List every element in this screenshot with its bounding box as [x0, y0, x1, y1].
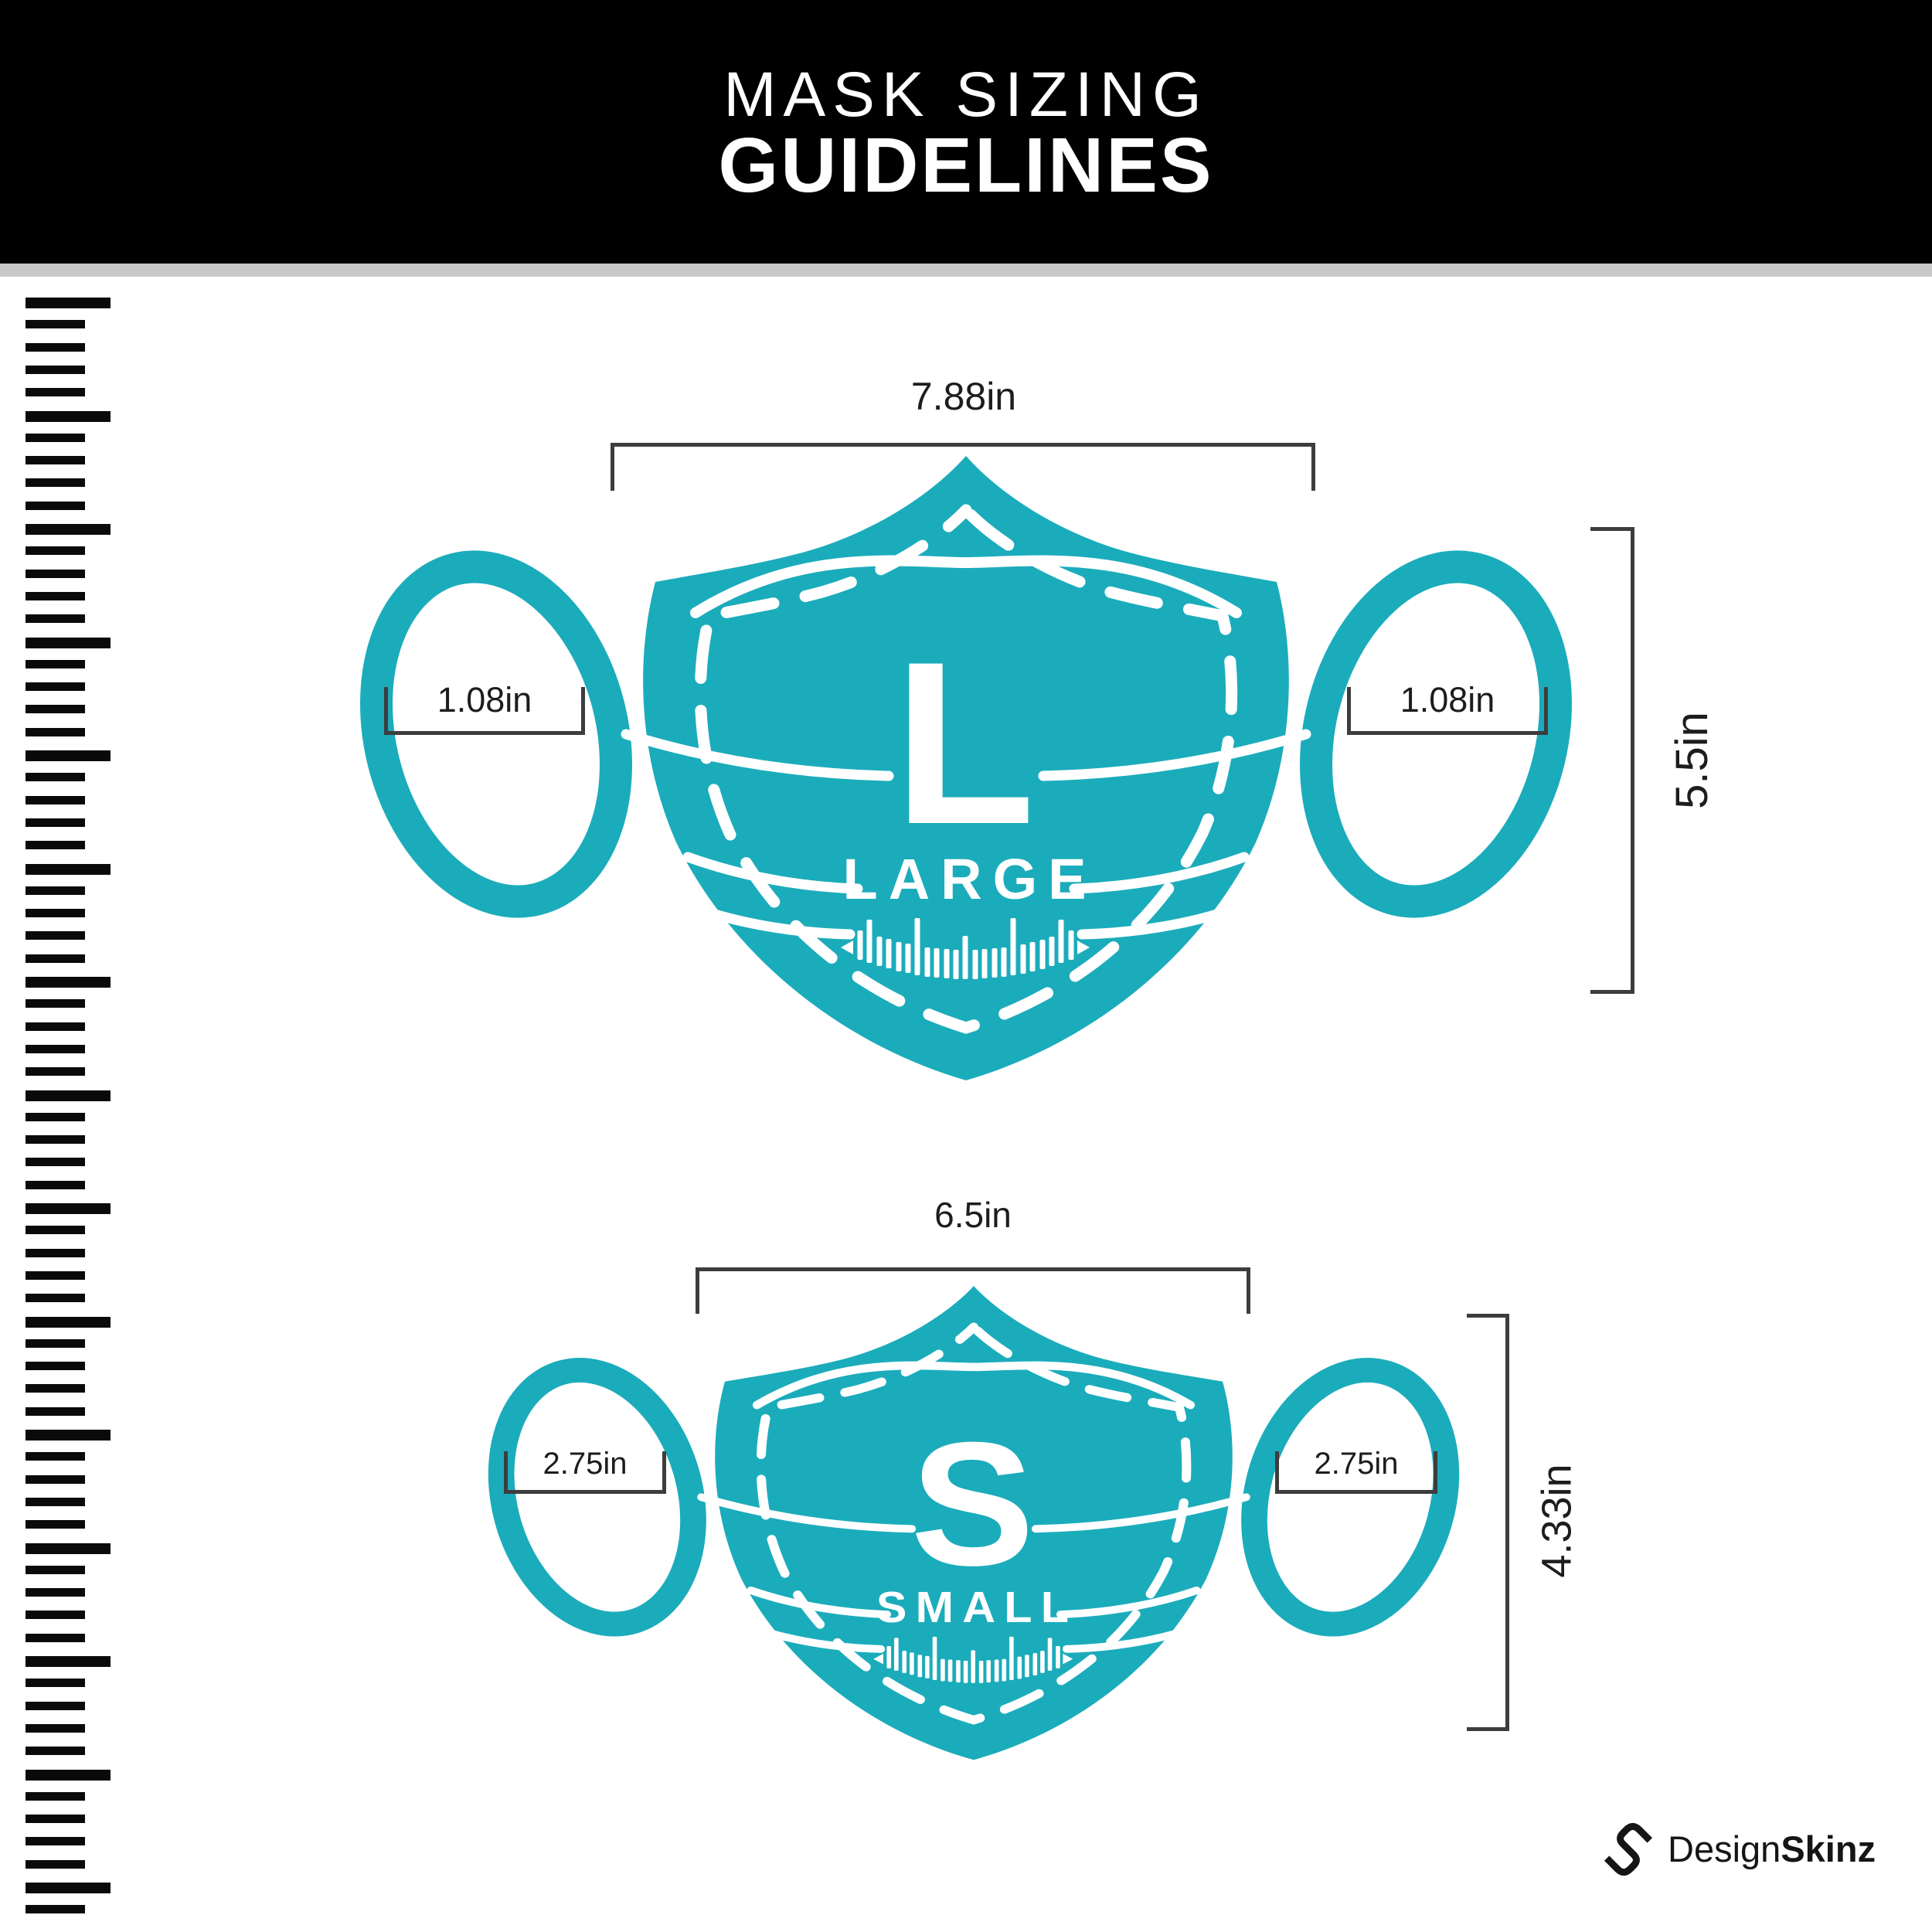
ruler-tick: [26, 1181, 85, 1189]
ruler-tick: [26, 456, 85, 464]
ruler-tick: [26, 1113, 85, 1121]
ruler-tick: [26, 1135, 85, 1144]
ruler-tick: [26, 1679, 85, 1687]
ruler-tick: [26, 682, 85, 691]
ruler-tick: [26, 1067, 85, 1076]
ruler: [0, 0, 155, 1932]
brand-name-bold: Skinz: [1781, 1828, 1876, 1869]
ruler-tick: [26, 1158, 85, 1166]
large-height-bracket: [1590, 527, 1634, 994]
ruler-tick: [26, 1656, 111, 1667]
ruler-tick: [26, 977, 111, 988]
infographic-canvas: MASK SIZING GUIDELINES: [0, 0, 1932, 1932]
ruler-tick: [26, 298, 111, 308]
ruler-tick: [26, 909, 85, 917]
ruler-tick: [26, 954, 85, 963]
ruler-tick: [26, 1452, 85, 1461]
small-height-bracket: [1467, 1314, 1509, 1731]
ruler-tick: [26, 614, 85, 623]
ruler-tick: [26, 1770, 111, 1781]
ruler-tick: [26, 999, 85, 1008]
ruler-tick: [26, 411, 111, 422]
ruler-tick: [26, 1430, 111, 1440]
ruler-tick: [26, 796, 85, 804]
ruler-tick: [26, 343, 85, 352]
ruler-tick: [26, 570, 85, 578]
brand-name-regular: Design: [1668, 1828, 1781, 1869]
page-title-line-1: MASK SIZING: [0, 63, 1932, 127]
ruler-tick: [26, 818, 85, 827]
ruler-tick: [26, 546, 85, 555]
ruler-tick: [26, 1860, 85, 1869]
large-mask-illustration: L LARGE: [363, 447, 1569, 1104]
large-width-label: 7.88in: [809, 376, 1118, 418]
ruler-tick: [26, 434, 85, 442]
small-ear-right-label: 2.75in: [1279, 1447, 1434, 1481]
ruler-tick: [26, 1317, 111, 1328]
ruler-tick: [26, 1747, 85, 1755]
ruler-tick: [26, 1520, 85, 1529]
ruler-tick: [26, 1475, 85, 1484]
small-mask-illustration: S SMALL: [491, 1279, 1457, 1777]
ruler-tick: [26, 1271, 85, 1280]
small-ear-left-label: 2.75in: [508, 1447, 662, 1481]
ruler-tick: [26, 1543, 111, 1554]
ruler-tick: [26, 1362, 85, 1370]
ruler-tick: [26, 478, 85, 487]
large-ear-right-bracket: 1.08in: [1347, 687, 1548, 735]
ruler-tick: [26, 1384, 85, 1393]
large-mask-size-label: LARGE: [843, 847, 1097, 911]
ruler-tick: [26, 1905, 85, 1913]
ruler-tick: [26, 1883, 111, 1893]
brand-name: DesignSkinz: [1668, 1828, 1876, 1870]
ruler-tick: [26, 1407, 85, 1416]
ruler-tick: [26, 1226, 85, 1234]
ruler-tick: [26, 592, 85, 600]
ruler-tick: [26, 1339, 85, 1348]
small-mask-size-label: SMALL: [876, 1583, 1077, 1631]
ruler-tick: [26, 864, 111, 875]
ruler-tick: [26, 1249, 85, 1257]
ruler-tick: [26, 1611, 85, 1619]
ruler-tick: [26, 366, 85, 374]
ruler-tick: [26, 388, 85, 396]
ruler-tick: [26, 524, 111, 535]
large-height-label: 5.5in: [1668, 712, 1717, 809]
small-ear-right-bracket: 2.75in: [1275, 1451, 1437, 1494]
header: MASK SIZING GUIDELINES: [0, 0, 1932, 264]
large-mask-letter: L: [893, 613, 1035, 872]
ruler-tick: [26, 1566, 85, 1574]
ruler-tick: [26, 728, 85, 736]
ruler-tick: [26, 1837, 85, 1845]
small-height-label: 4.33in: [1534, 1464, 1580, 1577]
large-ear-left-label: 1.08in: [388, 681, 581, 719]
page-title-line-2: GUIDELINES: [0, 127, 1932, 204]
ruler-tick: [26, 1498, 85, 1506]
ruler-tick: [26, 1090, 111, 1101]
ruler-tick: [26, 750, 111, 761]
ruler-tick: [26, 773, 85, 781]
ruler-tick: [26, 931, 85, 940]
ruler-tick: [26, 1294, 85, 1302]
ruler-tick: [26, 1724, 85, 1733]
ruler-tick: [26, 1203, 111, 1214]
ruler-tick: [26, 841, 85, 849]
ruler-tick: [26, 1022, 85, 1031]
ruler-tick: [26, 705, 85, 713]
large-ear-left-bracket: 1.08in: [384, 687, 585, 735]
large-width-bracket: [611, 443, 1315, 491]
header-divider: [0, 264, 1932, 277]
small-width-label: 6.5in: [818, 1196, 1128, 1235]
ruler-tick: [26, 502, 85, 510]
ruler-tick: [26, 1634, 85, 1642]
designskinz-logo-icon: [1597, 1818, 1660, 1881]
ruler-tick: [26, 1792, 85, 1801]
small-mask-letter: S: [910, 1405, 1034, 1602]
ruler-tick: [26, 638, 111, 648]
ruler-tick: [26, 320, 85, 328]
small-ear-left-bracket: 2.75in: [504, 1451, 666, 1494]
ruler-tick: [26, 1815, 85, 1823]
ruler-tick: [26, 1588, 85, 1597]
ruler-tick: [26, 1045, 85, 1053]
ruler-tick: [26, 886, 85, 895]
ruler-tick: [26, 1702, 85, 1710]
ruler-tick: [26, 660, 85, 668]
small-width-bracket: [696, 1267, 1250, 1314]
large-ear-right-label: 1.08in: [1351, 681, 1544, 719]
